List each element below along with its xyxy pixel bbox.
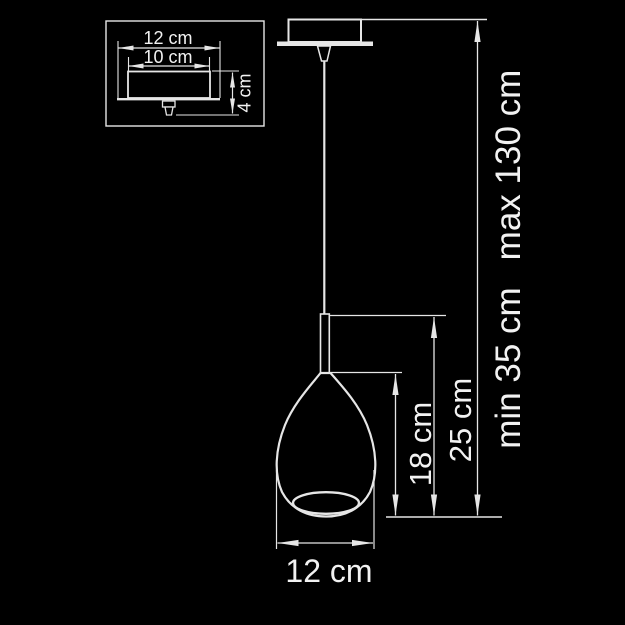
lamp-stem [321, 314, 330, 373]
inset-canopy-width-label: 12 cm [143, 28, 192, 48]
inset-cable-grip-bottom [165, 107, 173, 115]
diagram-svg: 12 cm 10 cm 4 cm [0, 0, 625, 625]
shade-opening [293, 492, 359, 514]
suspension-max-label: max 130 cm [489, 70, 528, 261]
body-height-label: 25 cm [443, 378, 478, 462]
inset-canopy-height-label: 4 cm [235, 73, 255, 112]
cable-grip [318, 46, 331, 61]
lamp-dimension-diagram: 12 cm 10 cm 4 cm [0, 0, 625, 625]
inset-canopy-inner-width-label: 10 cm [143, 47, 192, 67]
shade-diameter-label: 12 cm [285, 553, 372, 589]
canopy-body [289, 20, 362, 43]
inset-cable-grip-top [163, 101, 176, 107]
inset-canopy-body [128, 72, 210, 99]
shade-height-label: 18 cm [403, 402, 438, 486]
suspension-min-label: min 35 cm [489, 287, 528, 448]
canopy-detail-inset: 12 cm 10 cm 4 cm [106, 21, 264, 126]
